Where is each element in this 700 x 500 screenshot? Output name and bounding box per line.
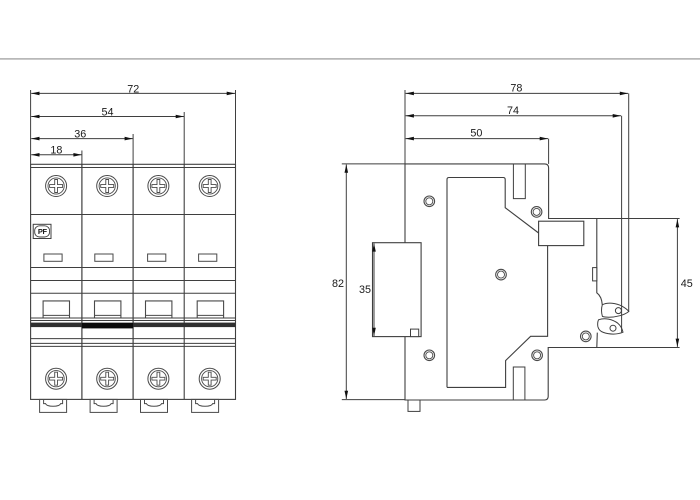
svg-text:36: 36 bbox=[74, 129, 86, 141]
svg-text:35: 35 bbox=[359, 284, 371, 296]
svg-text:18: 18 bbox=[50, 145, 62, 157]
svg-text:50: 50 bbox=[470, 128, 482, 140]
svg-text:45: 45 bbox=[681, 278, 693, 290]
svg-text:78: 78 bbox=[510, 83, 522, 95]
svg-text:74: 74 bbox=[507, 105, 519, 117]
svg-text:54: 54 bbox=[101, 106, 113, 118]
svg-text:72: 72 bbox=[127, 83, 139, 95]
svg-text:82: 82 bbox=[332, 278, 344, 290]
svg-text:PF: PF bbox=[38, 227, 48, 236]
